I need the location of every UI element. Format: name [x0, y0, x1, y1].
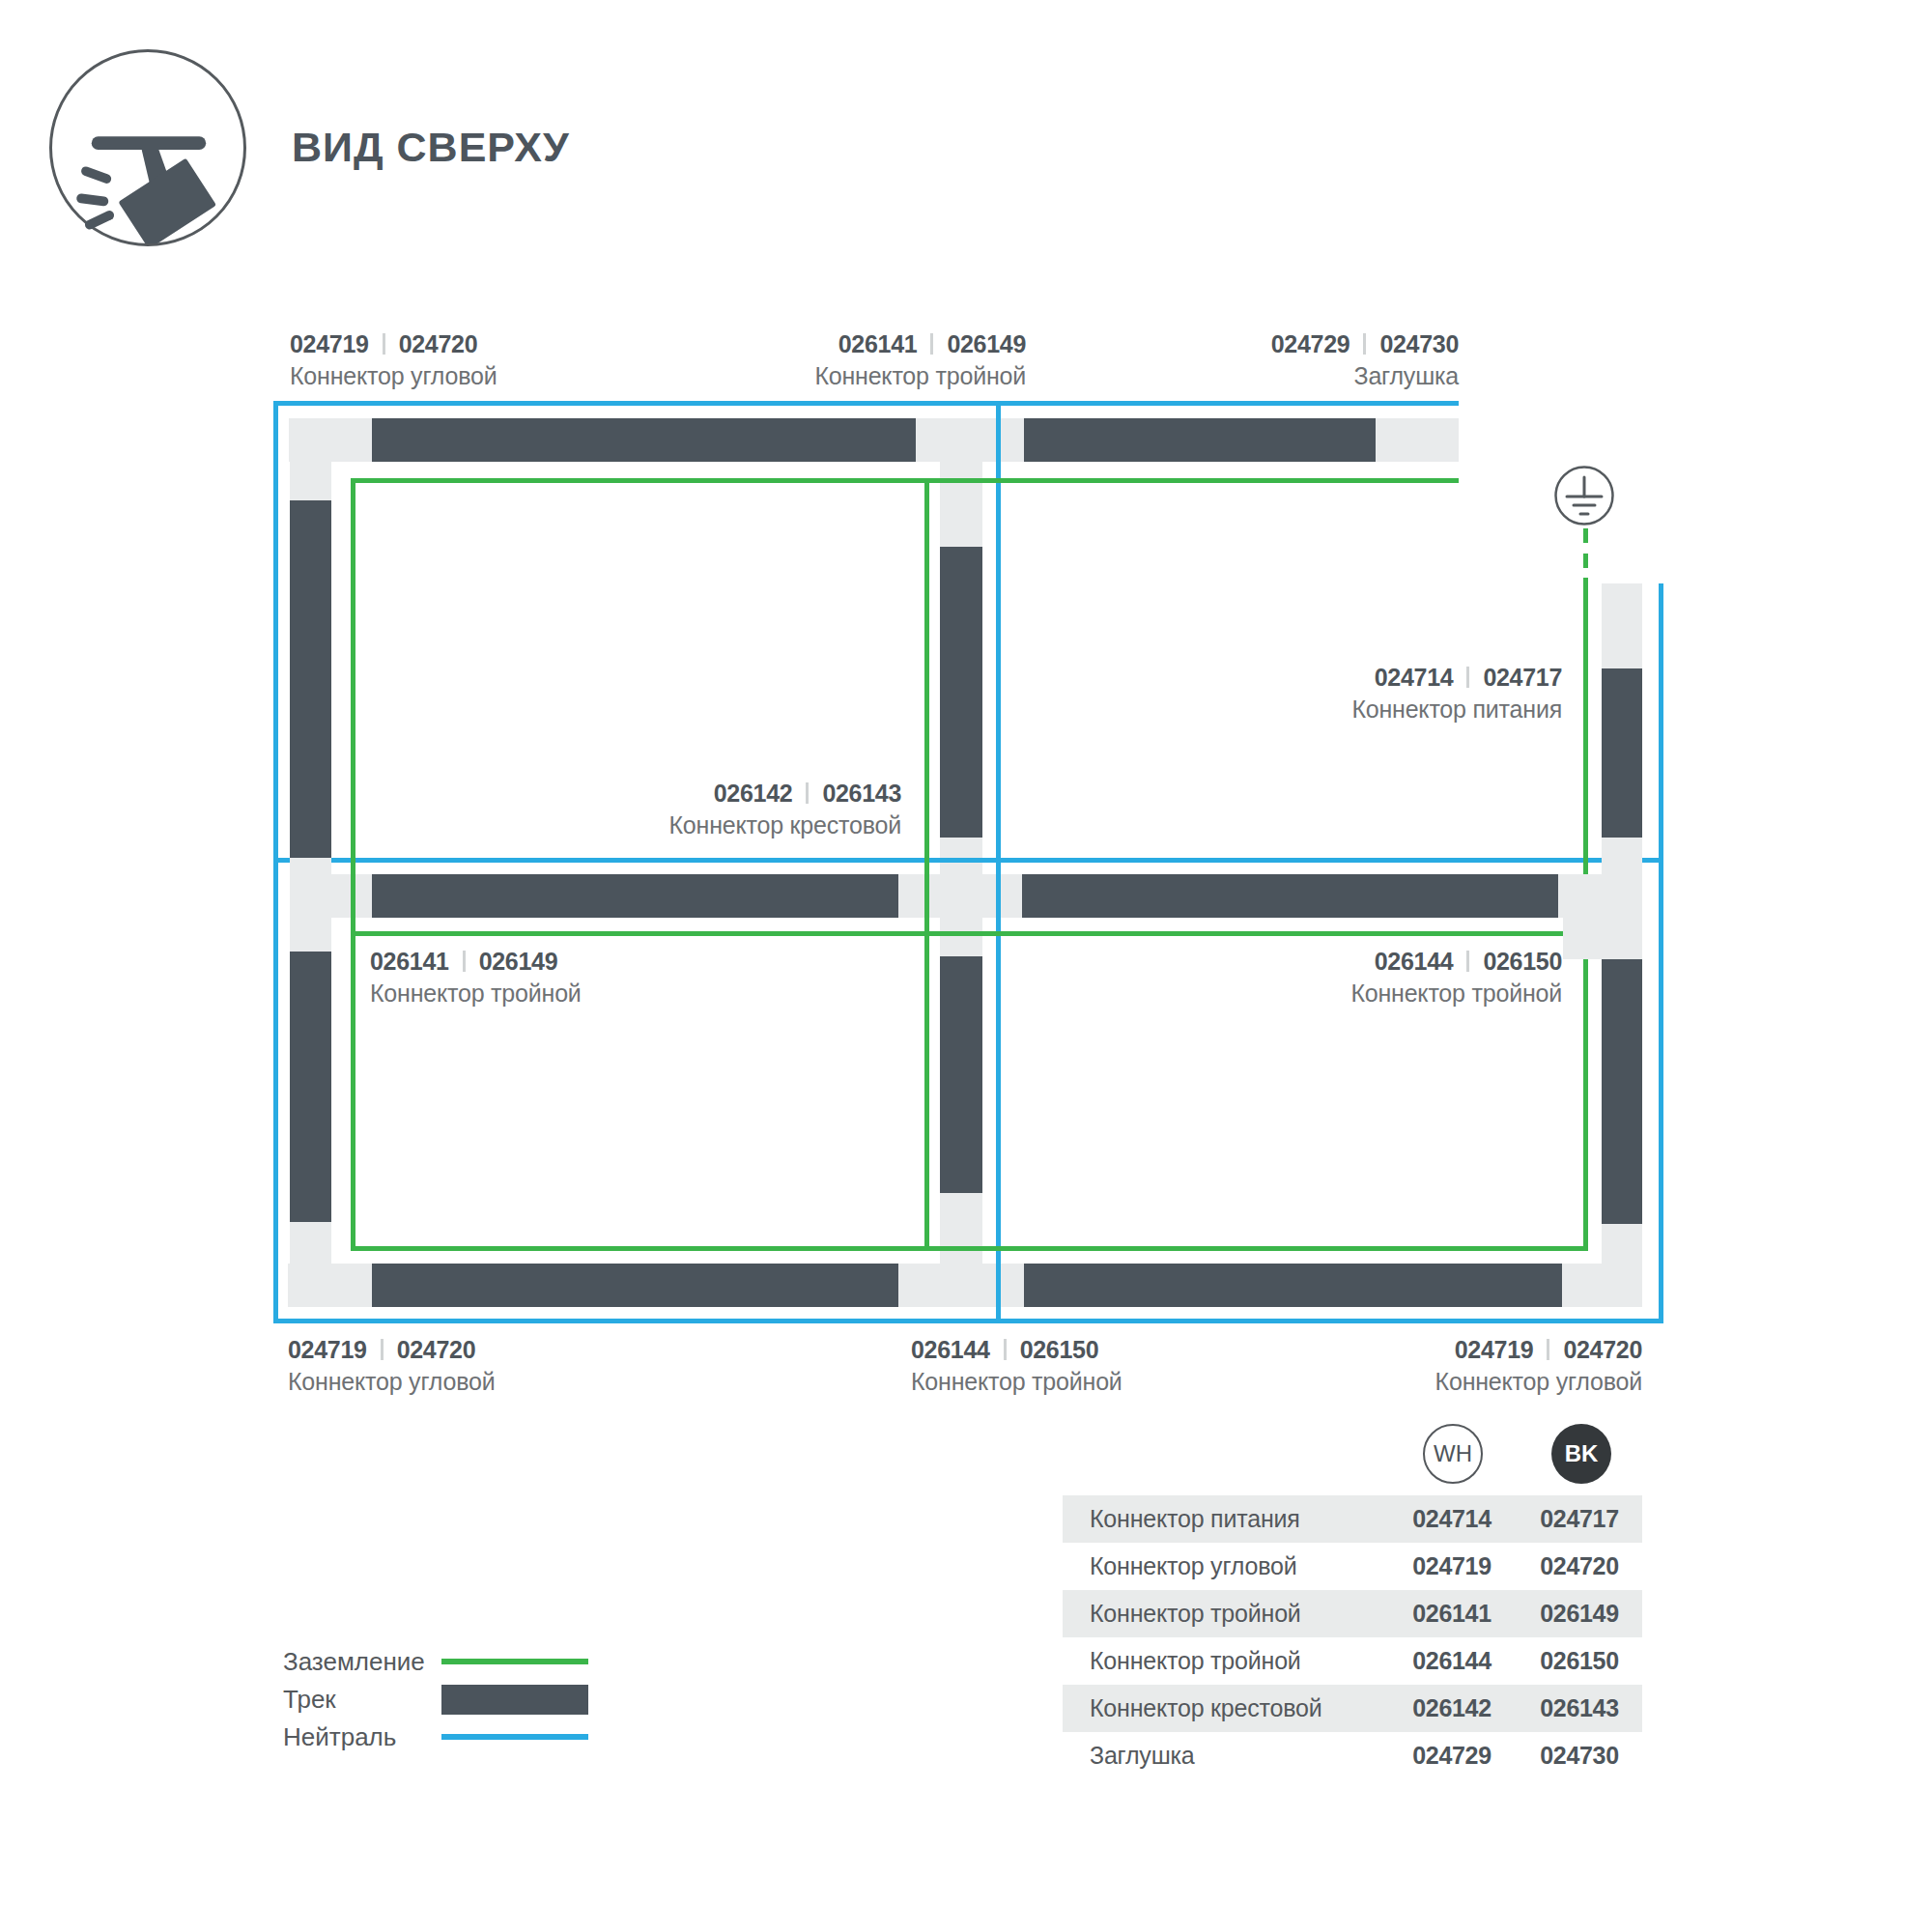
separator [381, 1339, 384, 1360]
track-segment [372, 1264, 898, 1307]
ground-line-bottom [351, 1246, 1588, 1251]
connector-label: 026144026150 Коннектор тройной [911, 1335, 1122, 1396]
part-number-wh: 024719 [290, 330, 369, 357]
legend-item-ground: Заземление [283, 1645, 592, 1678]
row-bk: 026143 [1517, 1694, 1642, 1722]
row-name: Коннектор крестовой [1063, 1694, 1387, 1722]
row-bk: 026149 [1517, 1600, 1642, 1628]
legend-label: Нейтраль [283, 1722, 396, 1752]
row-name: Коннектор тройной [1063, 1647, 1387, 1675]
tee-connector [1563, 874, 1642, 959]
connector-name: Коннектор тройной [1350, 979, 1562, 1008]
track-segment [1024, 418, 1376, 462]
legend-swatch-track [441, 1685, 588, 1715]
ground-line-middle [351, 931, 1588, 936]
bk-badge-label: BK [1565, 1440, 1599, 1467]
table-row: Заглушка 024729 024730 [1063, 1732, 1642, 1779]
row-bk: 024720 [1517, 1552, 1642, 1580]
row-wh: 026144 [1387, 1647, 1517, 1675]
separator [930, 333, 933, 355]
wh-badge: WH [1423, 1424, 1483, 1484]
track-segment [1024, 1264, 1562, 1307]
page: ВИД СВЕРХУ [0, 0, 1932, 1932]
connector-name: Коннектор угловой [288, 1367, 495, 1396]
connector-name: Коннектор тройной [814, 361, 1026, 390]
connector-label: 026142026143 Коннектор крестовой [668, 779, 901, 839]
row-wh: 026141 [1387, 1600, 1517, 1628]
neutral-line-middle [273, 858, 1663, 863]
part-number-wh: 026141 [370, 948, 449, 975]
ground-line-dashed [1583, 528, 1588, 579]
table-row: Коннектор крестовой 026142 026143 [1063, 1685, 1642, 1732]
row-wh: 024719 [1387, 1552, 1517, 1580]
neutral-line-bottom [273, 1319, 1663, 1323]
part-number-bk: 026143 [822, 780, 901, 807]
track-segment [1602, 668, 1642, 838]
part-number-bk: 026150 [1020, 1336, 1099, 1363]
connector-label: 024719024720 Коннектор угловой [288, 1335, 495, 1396]
table-row: Коннектор тройной 026144 026150 [1063, 1637, 1642, 1685]
separator [1363, 333, 1366, 355]
table-row: Коннектор тройной 026141 026149 [1063, 1590, 1642, 1637]
track-segment [290, 500, 331, 858]
part-number-wh: 026144 [1375, 948, 1454, 975]
connector-label: 026141026149 Коннектор тройной [370, 947, 582, 1008]
spotlight-icon [52, 52, 243, 243]
part-number-wh: 024719 [288, 1336, 367, 1363]
part-number-bk: 024720 [1563, 1336, 1642, 1363]
part-number-bk: 024717 [1483, 664, 1562, 691]
connector-label: 024714024717 Коннектор питания [1351, 663, 1562, 724]
track-segment [940, 956, 982, 1193]
row-bk: 026150 [1517, 1647, 1642, 1675]
connector-name: Заглушка [1271, 361, 1459, 390]
parts-table: Коннектор питания 024714 024717 Коннекто… [1063, 1495, 1642, 1779]
table-row: Коннектор питания 024714 024717 [1063, 1495, 1642, 1543]
legend-label: Заземление [283, 1647, 425, 1677]
legend-label: Трек [283, 1685, 336, 1715]
track-segment [372, 418, 916, 462]
part-number-bk: 024720 [397, 1336, 476, 1363]
part-number-bk: 024730 [1379, 330, 1459, 357]
spotlight-badge [49, 49, 246, 246]
row-wh: 024729 [1387, 1742, 1517, 1770]
connector-name: Коннектор тройной [911, 1367, 1122, 1396]
connector-label: 026141026149 Коннектор тройной [814, 329, 1026, 390]
row-name: Коннектор угловой [1063, 1552, 1387, 1580]
separator [383, 333, 385, 355]
bk-badge: BK [1551, 1424, 1611, 1484]
connector-name: Коннектор угловой [290, 361, 497, 390]
separator [1466, 951, 1469, 972]
connector-name: Коннектор питания [1351, 695, 1562, 724]
part-number-bk: 026149 [479, 948, 558, 975]
legend-item-track: Трек [283, 1683, 592, 1716]
connector-label: 024719024720 Коннектор угловой [290, 329, 497, 390]
connector-name: Коннектор крестовой [668, 810, 901, 839]
ground-line-top [351, 478, 1459, 483]
connector-label: 024729024730 Заглушка [1271, 329, 1459, 390]
track-segment [372, 874, 898, 918]
separator [806, 782, 809, 804]
track-segment [1602, 959, 1642, 1224]
separator [1466, 667, 1469, 688]
connector-name: Коннектор тройной [370, 979, 582, 1008]
row-wh: 026142 [1387, 1694, 1517, 1722]
legend-item-neutral: Нейтраль [283, 1720, 592, 1753]
row-bk: 024730 [1517, 1742, 1642, 1770]
neutral-line-center [996, 401, 1001, 1323]
part-number-bk: 026150 [1483, 948, 1562, 975]
separator [1547, 1339, 1549, 1360]
connector-name: Коннектор угловой [1435, 1367, 1642, 1396]
row-name: Коннектор питания [1063, 1505, 1387, 1533]
part-number-bk: 024720 [399, 330, 478, 357]
neutral-line-top [273, 401, 1459, 406]
part-number-wh: 024714 [1375, 664, 1454, 691]
ground-symbol-icon [1553, 465, 1615, 530]
row-name: Заглушка [1063, 1742, 1387, 1770]
track-segment [290, 952, 331, 1222]
part-number-wh: 026144 [911, 1336, 990, 1363]
row-bk: 024717 [1517, 1505, 1642, 1533]
part-number-wh: 026141 [838, 330, 918, 357]
table-row: Коннектор угловой 024719 024720 [1063, 1543, 1642, 1590]
part-number-wh: 026142 [714, 780, 793, 807]
row-name: Коннектор тройной [1063, 1600, 1387, 1628]
part-number-bk: 026149 [947, 330, 1026, 357]
part-number-wh: 024729 [1271, 330, 1350, 357]
wh-badge-label: WH [1434, 1440, 1472, 1467]
tee-connector [290, 858, 331, 952]
track-segment [940, 547, 982, 838]
page-title: ВИД СВЕРХУ [292, 124, 570, 171]
connector-label: 026144026150 Коннектор тройной [1350, 947, 1562, 1008]
ground-line-center [924, 478, 929, 1251]
connector-label: 024719024720 Коннектор угловой [1435, 1335, 1642, 1396]
track-segment [1022, 874, 1558, 918]
legend-swatch-ground [441, 1659, 588, 1664]
part-number-wh: 024719 [1455, 1336, 1534, 1363]
legend-swatch-neutral [441, 1734, 588, 1740]
neutral-line-right [1659, 583, 1663, 1323]
neutral-line-left [273, 401, 278, 1323]
separator [1004, 1339, 1007, 1360]
row-wh: 024714 [1387, 1505, 1517, 1533]
separator [463, 951, 466, 972]
ground-line-left [351, 478, 355, 1251]
